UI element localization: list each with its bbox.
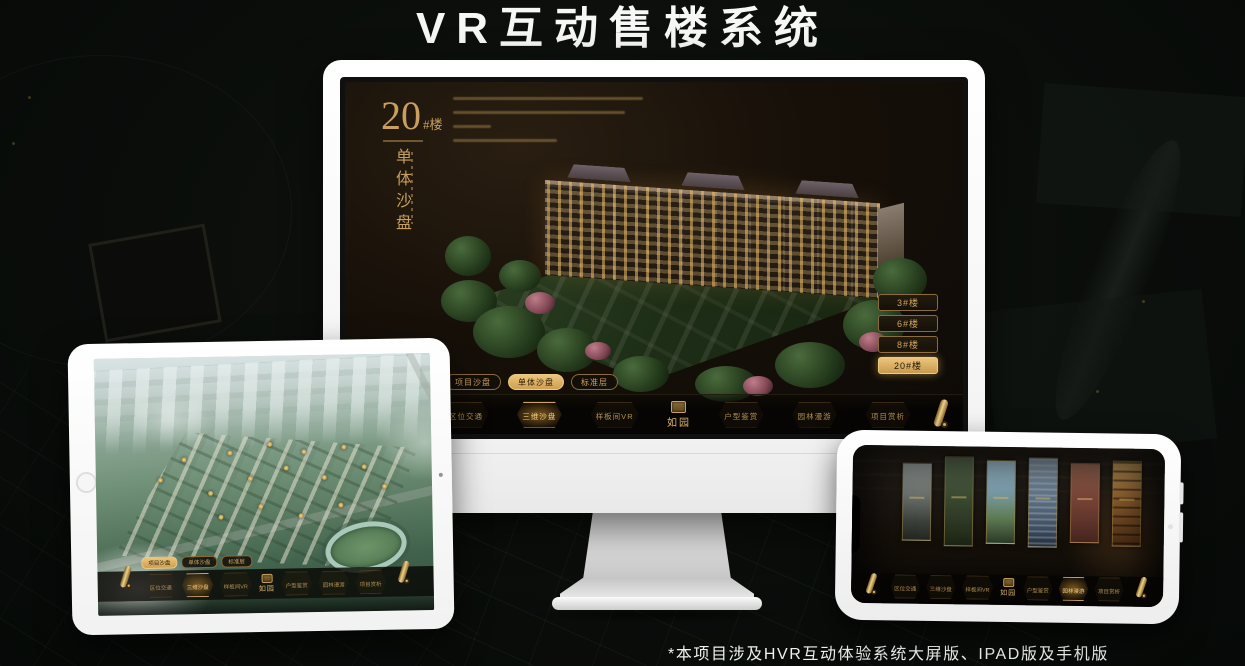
floor-button-6[interactable]: 6#楼 <box>878 315 938 332</box>
building-badge <box>298 513 303 518</box>
building-badge <box>284 466 289 471</box>
paragraph-line <box>453 97 643 100</box>
poster-stage: VR互动售楼系统 20#楼 单体沙盘 <box>0 0 1245 666</box>
brand-logo: 如园 <box>1000 578 1016 598</box>
home-button[interactable] <box>76 472 97 493</box>
nav-item-project-gallery[interactable]: 项目赏析 <box>865 401 911 429</box>
scroll-roll-icon[interactable] <box>931 399 953 429</box>
building-badge <box>248 476 253 481</box>
logo-seal-icon <box>671 401 686 413</box>
power-button[interactable] <box>1179 512 1183 542</box>
heading-vertical-title: 单体沙盘 <box>389 148 413 236</box>
background-speck <box>1096 390 1099 393</box>
ipad-mode-tabs: 项目沙盘 单体沙盘 标准层 <box>141 555 252 569</box>
brand-logo: 如园 <box>667 401 691 429</box>
phone-device: 区位交通 三维沙盘 样板间VR 如园 户型鉴赏 园林漫游 项目赏析 <box>835 430 1182 625</box>
nav-item-floorplans[interactable]: 户型鉴赏 <box>281 570 311 597</box>
building-badge <box>258 504 263 509</box>
camera-dot <box>1168 524 1173 529</box>
building-heading: 20#楼 <box>381 96 443 148</box>
monitor-stand-base <box>552 597 762 610</box>
nav-item-3d-sandbox[interactable]: 三维沙盘 <box>516 401 562 429</box>
nav-item-showroom-vr[interactable]: 样板间VR <box>590 401 640 429</box>
nav-item-garden-roam[interactable]: 园林漫游 <box>792 401 838 429</box>
building-badge <box>362 464 367 469</box>
building-number: 20 <box>381 93 421 138</box>
logo-seal-icon <box>1003 578 1014 587</box>
phone-main-nav: 区位交通 三维沙盘 样板间VR 如园 户型鉴赏 园林漫游 项目赏析 <box>851 573 1163 603</box>
building-badge <box>227 450 232 455</box>
scroll-roll-icon[interactable] <box>1134 577 1151 600</box>
heading-english-caption <box>411 152 413 224</box>
tab-project-sandbox[interactable]: 项目沙盘 <box>141 556 177 569</box>
tree <box>613 356 669 392</box>
flower-shrub <box>585 342 611 360</box>
paragraph-line <box>453 111 625 114</box>
nav-item-location[interactable]: 区位交通 <box>891 573 919 599</box>
logo-seal-icon <box>261 574 272 583</box>
page-title: VR互动售楼系统 <box>0 4 1245 55</box>
building-badge <box>208 491 213 496</box>
building-badge <box>322 475 327 480</box>
background-road-curve <box>0 55 292 367</box>
scroll-roll-icon[interactable] <box>396 560 414 584</box>
nav-item-garden-roam[interactable]: 园林漫游 <box>1059 576 1087 602</box>
nav-item-3d-sandbox[interactable]: 三维沙盘 <box>927 574 955 600</box>
building-badge <box>267 442 272 447</box>
phone-screen: 区位交通 三维沙盘 样板间VR 如园 户型鉴赏 园林漫游 项目赏析 <box>851 445 1165 607</box>
nav-item-3d-sandbox[interactable]: 三维沙盘 <box>182 572 212 599</box>
tree <box>499 260 541 292</box>
building-badge <box>382 484 387 489</box>
tab-standard-floor[interactable]: 标准层 <box>571 374 618 390</box>
building-badge <box>158 478 163 483</box>
building-badge <box>341 445 346 450</box>
nav-item-garden-roam[interactable]: 园林漫游 <box>318 569 348 596</box>
tab-single-sandbox[interactable]: 单体沙盘 <box>508 374 564 390</box>
brand-logo: 如园 <box>259 574 275 594</box>
scroll-roll-icon[interactable] <box>864 573 881 596</box>
floor-button-8[interactable]: 8#楼 <box>878 336 938 353</box>
building-badge <box>218 515 223 520</box>
nav-item-showroom-vr[interactable]: 样板间VR <box>219 571 252 598</box>
background-speck <box>28 96 31 99</box>
paragraph-line <box>453 125 491 128</box>
floor-button-20[interactable]: 20#楼 <box>878 357 938 374</box>
footnote: *本项目涉及HVR互动体验系统大屏版、IPAD版及手机版 <box>668 640 1109 664</box>
tab-single-sandbox[interactable]: 单体沙盘 <box>181 556 217 569</box>
background-speck <box>1142 300 1145 303</box>
floor-selector: 3#楼 6#楼 8#楼 20#楼 <box>878 294 938 374</box>
floor-button-3[interactable]: 3#楼 <box>878 294 938 311</box>
heading-divider <box>383 140 423 142</box>
tree <box>445 236 491 276</box>
tree <box>473 306 545 358</box>
background-speck <box>12 142 15 145</box>
nav-item-project-gallery[interactable]: 项目赏析 <box>355 569 385 596</box>
flower-shrub <box>743 376 773 396</box>
volume-button[interactable] <box>1179 482 1183 504</box>
tree <box>775 342 845 388</box>
tab-standard-floor[interactable]: 标准层 <box>221 555 252 568</box>
scroll-roll-icon[interactable] <box>118 565 136 589</box>
building-badge <box>301 449 306 454</box>
camera-dot <box>439 473 443 477</box>
mode-tabs: 项目沙盘 单体沙盘 标准层 <box>445 374 618 390</box>
flower-shrub <box>525 292 555 314</box>
nav-item-project-gallery[interactable]: 项目赏析 <box>1095 576 1123 602</box>
nav-item-floorplans[interactable]: 户型鉴赏 <box>718 401 764 429</box>
building-number-suffix: #楼 <box>423 117 443 132</box>
building-badge <box>338 503 343 508</box>
phone-notch <box>851 495 861 553</box>
building-3d-model[interactable] <box>445 142 915 392</box>
nav-item-floorplans[interactable]: 户型鉴赏 <box>1024 575 1052 601</box>
background-collage-block <box>1036 83 1245 217</box>
ipad-device: 项目沙盘 单体沙盘 标准层 区位交通 三维沙盘 样板间VR 如园 户型鉴赏 园林… <box>67 338 454 636</box>
nav-item-location[interactable]: 区位交通 <box>145 573 175 600</box>
tab-project-sandbox[interactable]: 项目沙盘 <box>445 374 501 390</box>
building-badge <box>181 457 186 462</box>
nav-item-showroom-vr[interactable]: 样板间VR <box>962 574 993 600</box>
ipad-screen: 项目沙盘 单体沙盘 标准层 区位交通 三维沙盘 样板间VR 如园 户型鉴赏 园林… <box>94 353 434 616</box>
